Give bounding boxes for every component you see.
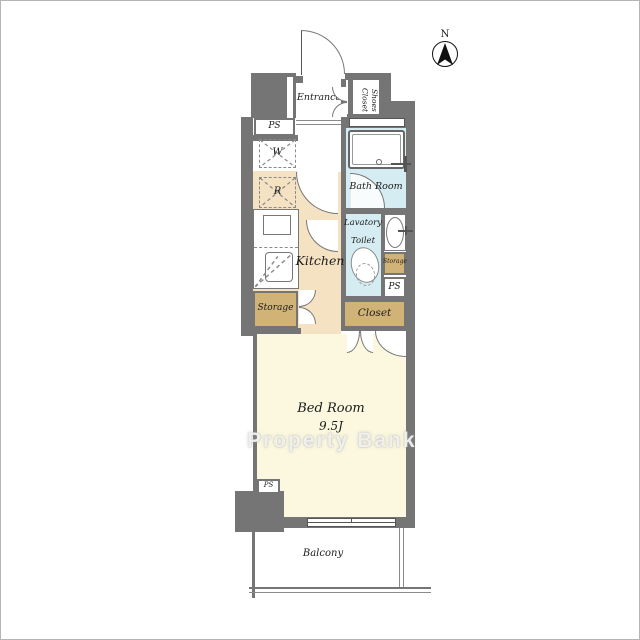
bedroom-name-label: Bed Room [271,402,391,417]
wall-storage-bottom [241,328,301,334]
storage-lavatory-label: Storage [383,259,406,266]
wall-bottom-left-block [235,491,284,532]
wall-slot [287,77,293,118]
balcony-rail-2 [249,592,431,593]
compass-needle-icon [432,41,458,67]
floor-plan: Entrance Shoes Closet PS W R Bath Room L… [0,0,640,640]
vanity-faucet-bar [405,226,407,235]
ps-entrance-label: PS [254,121,295,131]
lavatory-label-line2: Toilet [343,237,383,247]
balcony-wall-right-2 [403,528,404,589]
wall-exterior-left [241,117,253,336]
washer-label: W [259,147,296,159]
entrance-door-swing [301,30,345,74]
shoes-closet-label: Shoes Closet [353,81,379,119]
ps-bedroom-label: PS [257,481,280,489]
balcony-rail-1 [249,587,431,589]
wall-entrance-left [294,76,303,83]
shoes-closet-door-lower [332,102,347,117]
lavatory-label-line1: Lavatory [343,219,383,229]
wall-exterior-right [406,120,415,528]
shoes-closet-line1: Shoes [370,81,379,119]
balcony-wall-right-1 [399,528,400,589]
wall-bedroom-left [253,334,257,491]
entrance-step-line-2 [296,124,341,125]
kitchen-stove-guides [255,253,293,287]
storage-kitchen-label: Storage [253,303,298,313]
kitchen-label: Kitchen [295,254,345,268]
entrance-step-line-1 [296,120,341,121]
compass: N [427,29,463,71]
shoes-closet-line2: Closet [360,81,369,119]
balcony-label: Balcony [288,548,358,560]
vanity-sink [386,217,404,248]
hallway-floor [298,121,341,172]
bath-faucet-pipe [391,163,411,165]
refrigerator-label: R [259,186,296,198]
bath-window [349,118,405,127]
kitchen-counter-divider [254,247,298,248]
kitchen-sink [263,215,291,235]
ps-lavatory-label: PS [383,282,406,292]
bathtub-drain [376,159,382,165]
bath-room-label: Bath Room [346,182,406,193]
bedroom-window-tick [351,518,352,523]
closet-label: Closet [343,307,406,319]
compass-n-label: N [427,29,463,41]
bath-faucet-bar [404,156,407,172]
watermark-text: Property Bank [247,429,417,453]
